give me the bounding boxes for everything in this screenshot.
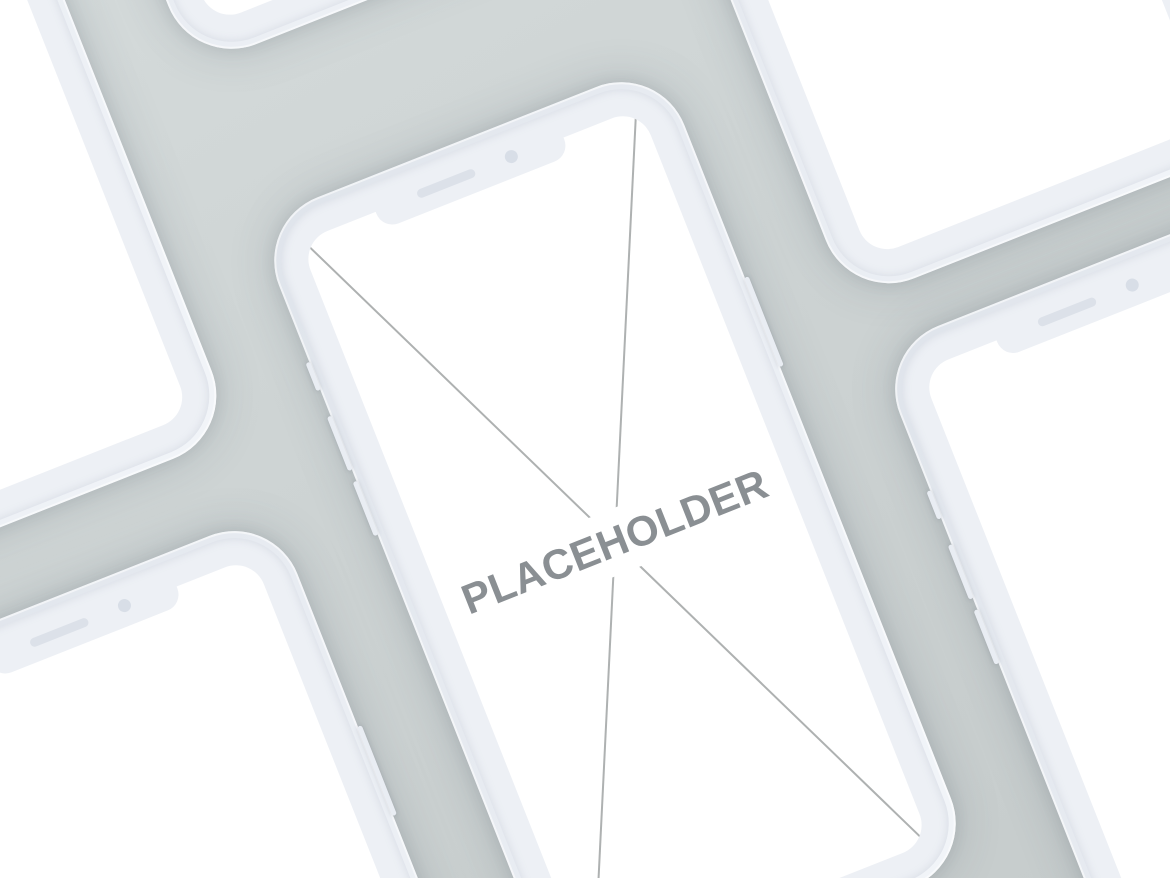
- camera-icon: [1124, 277, 1141, 294]
- phone-bezel: [0, 0, 590, 60]
- camera-icon: [503, 148, 520, 165]
- camera-icon: [116, 597, 133, 614]
- mockup-scene: PLACEHOLDER: [0, 0, 1170, 878]
- phone-upper-center: [0, 0, 599, 69]
- phone-top-left: [0, 0, 237, 594]
